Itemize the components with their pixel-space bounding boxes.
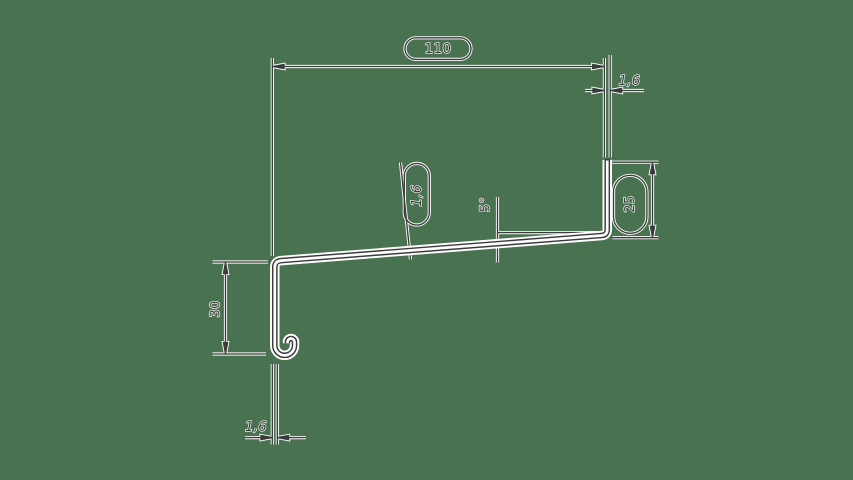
dim-leg-height-label: 30 — [209, 300, 224, 317]
dim-overall-width-label: 110 — [425, 41, 452, 57]
dim-leg-thickness-label: 1,6 — [245, 420, 267, 435]
dim-flange-thickness-label: 1,6 — [619, 74, 641, 89]
profile-drawing: 110 1,6 25 1,6 5° 30 1,6 — [0, 0, 853, 480]
dim-flange-height-label: 25 — [623, 195, 638, 212]
drawing-background — [0, 0, 853, 480]
dim-web-angle-label: 5° — [479, 197, 494, 213]
technical-drawing-canvas: 110 1,6 25 1,6 5° 30 1,6 — [0, 0, 853, 480]
dim-web-thickness-label: 1,6 — [410, 185, 425, 207]
